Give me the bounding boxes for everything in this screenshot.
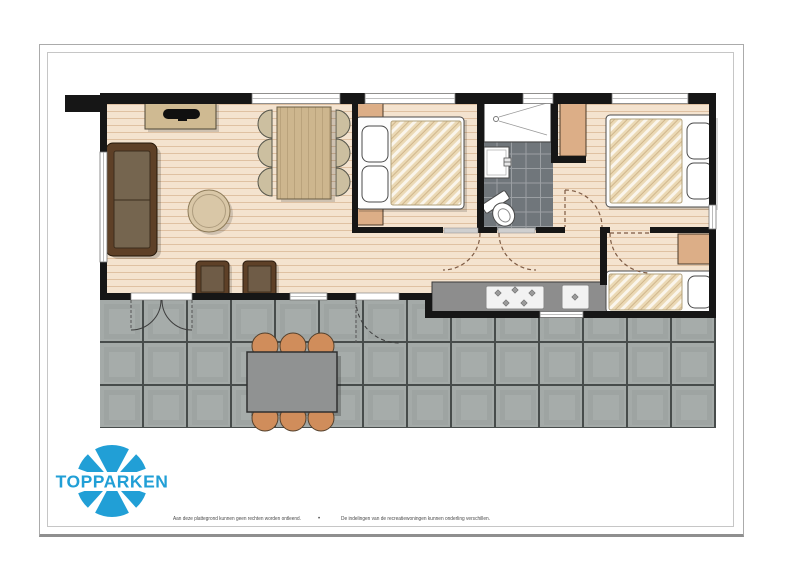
mattress	[609, 274, 682, 310]
hob	[486, 286, 544, 309]
sofa	[106, 143, 161, 259]
wall-segment	[352, 227, 443, 233]
wall-segment	[352, 104, 358, 233]
window	[365, 94, 455, 104]
window	[290, 293, 327, 300]
dining-table-set	[258, 107, 350, 202]
terrace-dining-set	[247, 333, 341, 431]
tv	[163, 109, 200, 119]
window	[612, 94, 688, 104]
wall-segment	[477, 227, 497, 233]
wall-segment	[600, 227, 610, 233]
floorplan	[65, 93, 718, 431]
tv-sideboard	[145, 102, 219, 132]
wardrobe	[678, 234, 712, 264]
pillow	[688, 276, 712, 308]
wall-segment	[477, 93, 484, 233]
floorplan-canvas: TOPPARKEN Aan deze plattegrond kunnen ge…	[0, 0, 800, 572]
wall-segment	[553, 93, 612, 104]
outdoor-table	[247, 352, 337, 412]
wall-segment	[709, 229, 716, 318]
disclaimer-right: De indelingen van de recreatiewoningen k…	[341, 516, 490, 522]
mattress	[391, 121, 461, 205]
wall-segment	[600, 227, 607, 285]
footer: Aan deze plattegrond kunnen geen rechten…	[173, 516, 490, 522]
wall-segment	[709, 93, 716, 205]
wall-segment	[100, 93, 107, 152]
washbasin	[484, 147, 511, 178]
window	[540, 312, 583, 318]
kitchen-counter	[432, 282, 610, 312]
wall-segment	[551, 156, 586, 163]
page: TOPPARKEN Aan deze plattegrond kunnen ge…	[0, 0, 800, 572]
pillow	[687, 123, 712, 159]
wall-segment	[455, 93, 523, 104]
window	[252, 94, 340, 104]
wall-segment	[65, 95, 106, 112]
pillow	[362, 126, 388, 162]
bedroom-1-furniture	[356, 103, 467, 225]
disclaimer-left: Aan deze plattegrond kunnen geen rechten…	[173, 516, 301, 522]
brand-logo: TOPPARKEN	[48, 445, 176, 517]
wall-segment	[100, 293, 131, 300]
wall-segment	[327, 293, 356, 300]
terrace-tiles-right	[425, 318, 716, 428]
disclaimer-separator: •	[318, 516, 320, 522]
wall-segment	[192, 293, 290, 300]
wall-segment	[100, 93, 252, 104]
window	[523, 94, 553, 104]
brand-wordmark: TOPPARKEN	[56, 472, 169, 492]
wall-segment	[650, 227, 716, 233]
wall-segment	[536, 227, 565, 233]
pillow	[687, 163, 712, 199]
window	[709, 205, 716, 229]
wall-segment	[340, 93, 365, 104]
window	[100, 152, 107, 262]
wardrobe	[560, 100, 586, 156]
dining-table	[277, 107, 331, 199]
pillow	[362, 166, 388, 202]
kitchen-sink	[562, 285, 589, 309]
mattress	[610, 119, 682, 203]
